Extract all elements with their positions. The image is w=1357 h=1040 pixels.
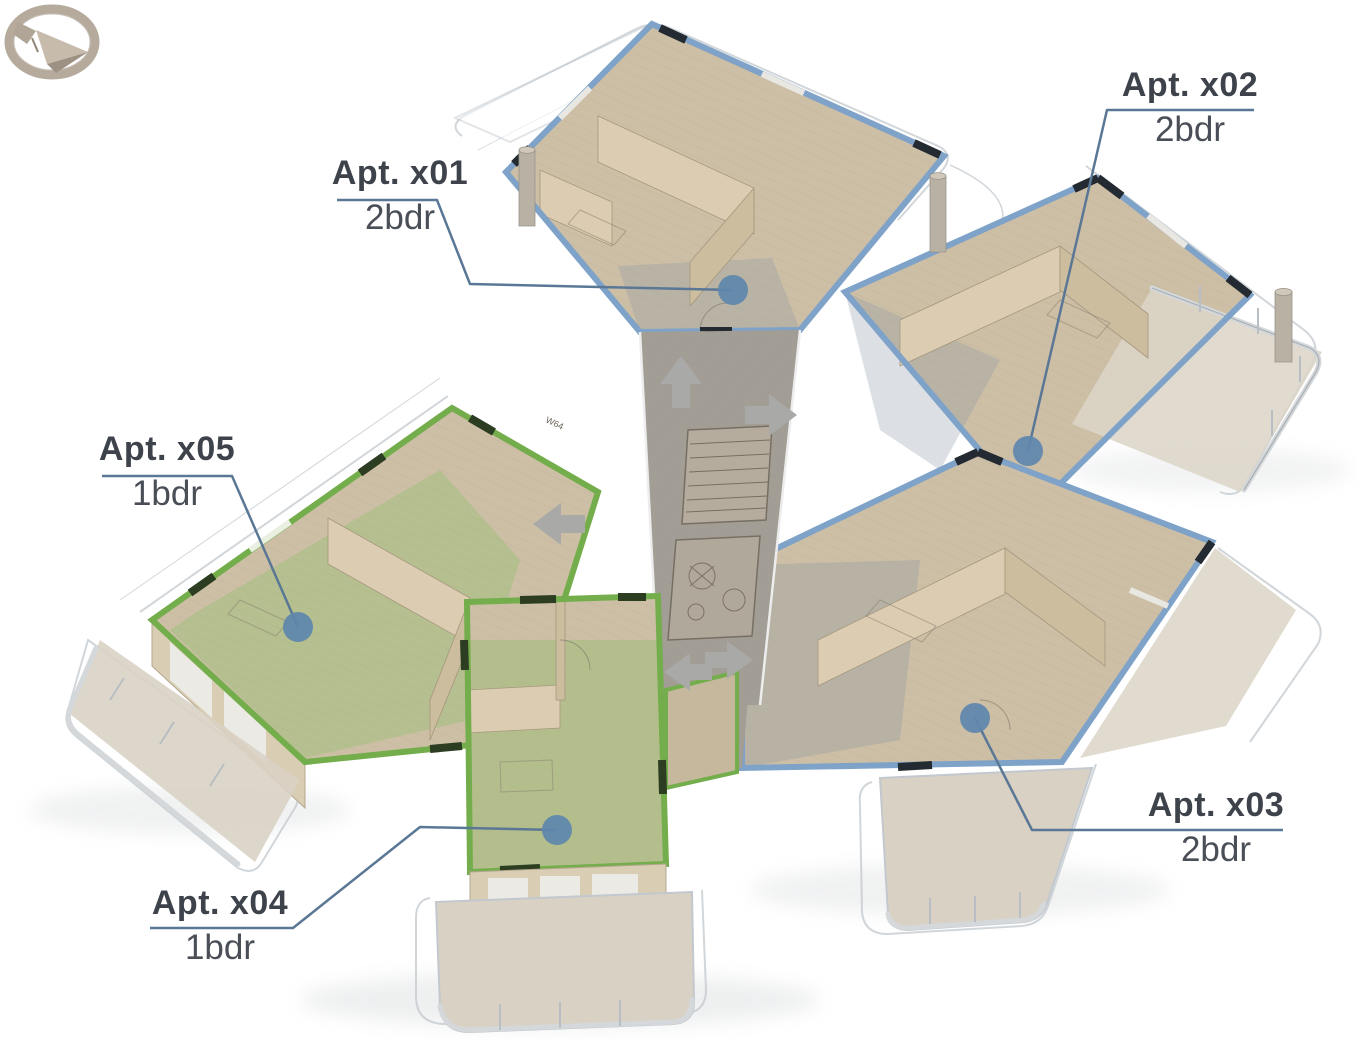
apartment-marker-x02[interactable] xyxy=(1013,436,1043,466)
apartment-label-x04[interactable]: Apt. x04 1bdr xyxy=(152,884,288,968)
apartment-label-x01[interactable]: Apt. x01 2bdr xyxy=(332,154,468,238)
wall-tag: W64 xyxy=(544,415,565,432)
apartment-label-x03[interactable]: Apt. x03 2bdr xyxy=(1148,786,1284,870)
apartment-name: Apt. x04 xyxy=(152,884,288,922)
chimney xyxy=(1275,288,1292,362)
wing-x02 xyxy=(845,178,1322,512)
apartment-type: 2bdr xyxy=(1122,110,1258,150)
apartment-marker-x01[interactable] xyxy=(718,275,748,305)
apartment-type: 1bdr xyxy=(152,928,288,968)
apartment-marker-x03[interactable] xyxy=(960,703,990,733)
floorplan-view: W64 W52 xyxy=(0,0,1357,1040)
apartment-name: Apt. x03 xyxy=(1148,786,1284,824)
apartment-type: 2bdr xyxy=(1148,830,1284,870)
apartment-label-x05[interactable]: Apt. x05 1bdr xyxy=(99,430,235,514)
apartment-name: Apt. x05 xyxy=(99,430,235,468)
compass-needle xyxy=(36,30,88,64)
apartment-marker-x04[interactable] xyxy=(542,815,572,845)
apartment-type: 1bdr xyxy=(99,474,235,514)
apartment-type: 2bdr xyxy=(332,198,468,238)
apartment-name: Apt. x01 xyxy=(332,154,468,192)
apartment-name: Apt. x02 xyxy=(1122,66,1258,104)
apartment-marker-x05[interactable] xyxy=(283,612,313,642)
north-compass-icon xyxy=(0,0,106,86)
apartment-label-x02[interactable]: Apt. x02 2bdr xyxy=(1122,66,1258,150)
